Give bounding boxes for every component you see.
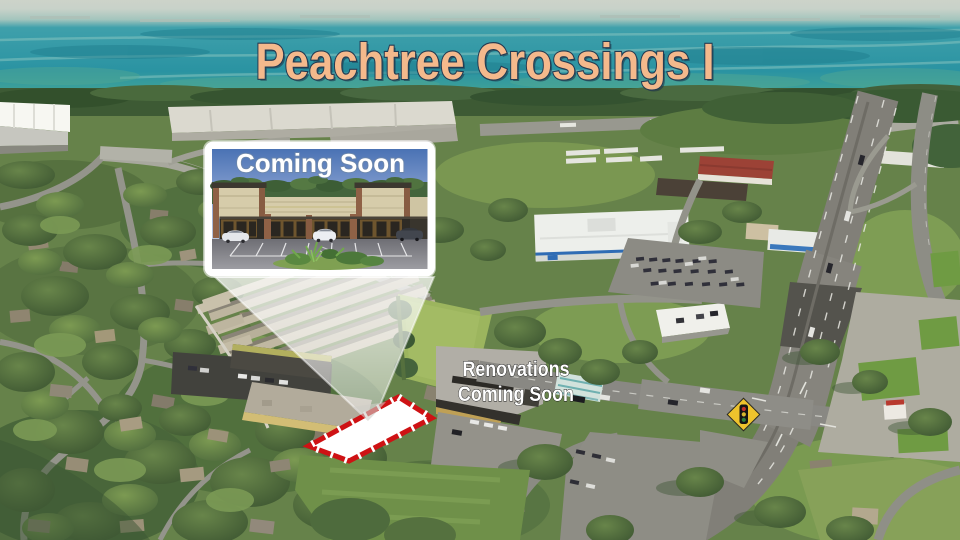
svg-text:Peachtree Crossings I: Peachtree Crossings I — [255, 34, 714, 91]
svg-text:Coming Soon: Coming Soon — [458, 383, 574, 407]
svg-text:Coming Soon: Coming Soon — [236, 148, 405, 178]
svg-text:Renovations: Renovations — [462, 358, 569, 382]
